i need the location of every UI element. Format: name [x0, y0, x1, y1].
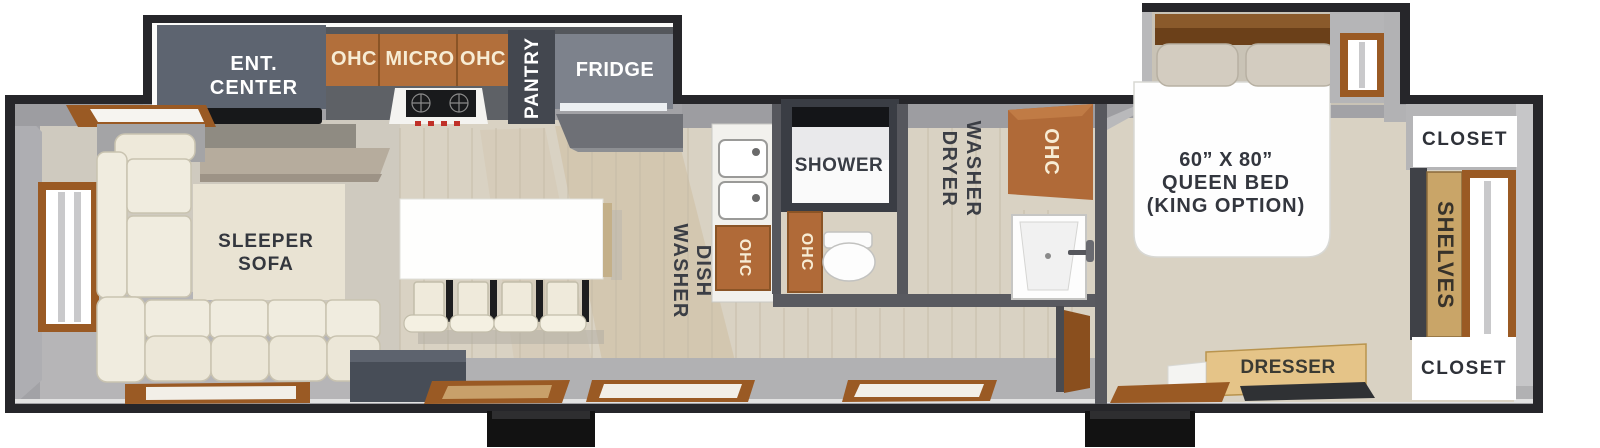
- svg-text:OHC: OHC: [1040, 128, 1062, 175]
- svg-text:ENT.: ENT.: [230, 53, 277, 75]
- svg-text:OHC: OHC: [460, 48, 506, 70]
- svg-text:(KING OPTION): (KING OPTION): [1147, 195, 1306, 217]
- svg-text:OHC: OHC: [331, 48, 377, 70]
- svg-text:OHC: OHC: [798, 233, 815, 272]
- svg-text:MICRO: MICRO: [385, 48, 454, 70]
- svg-text:CENTER: CENTER: [210, 77, 298, 99]
- svg-text:QUEEN BED: QUEEN BED: [1162, 172, 1290, 194]
- svg-text:FRIDGE: FRIDGE: [576, 59, 655, 81]
- svg-text:60” X 80”: 60” X 80”: [1179, 149, 1272, 171]
- svg-text:CLOSET: CLOSET: [1421, 358, 1507, 379]
- svg-text:SLEEPER: SLEEPER: [218, 231, 314, 252]
- svg-text:CLOSET: CLOSET: [1422, 129, 1508, 150]
- svg-text:SOFA: SOFA: [238, 254, 294, 275]
- svg-text:OHC: OHC: [736, 239, 753, 278]
- svg-text:SHELVES: SHELVES: [1433, 201, 1458, 309]
- svg-text:PANTRY: PANTRY: [522, 37, 543, 119]
- svg-text:SHOWER: SHOWER: [795, 155, 884, 176]
- svg-text:DRESSER: DRESSER: [1240, 357, 1335, 378]
